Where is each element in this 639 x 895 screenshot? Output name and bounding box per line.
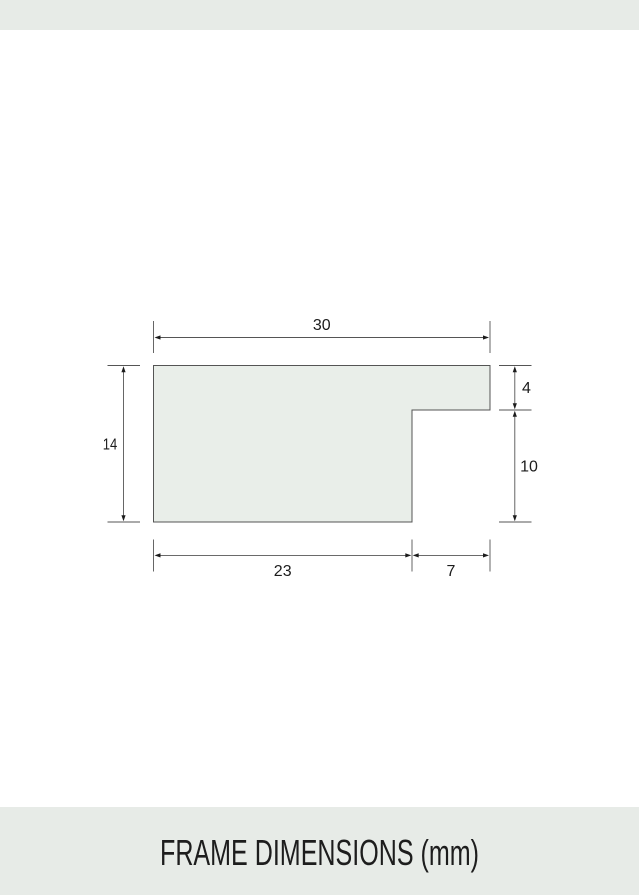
svg-text:30: 30 — [313, 317, 331, 334]
svg-text:FRAME DIMENSIONS (mm): FRAME DIMENSIONS (mm) — [160, 832, 479, 873]
svg-text:10: 10 — [520, 458, 538, 475]
svg-text:7: 7 — [447, 563, 456, 580]
svg-text:14: 14 — [103, 436, 118, 453]
svg-text:23: 23 — [274, 563, 292, 580]
svg-text:4: 4 — [522, 380, 531, 397]
